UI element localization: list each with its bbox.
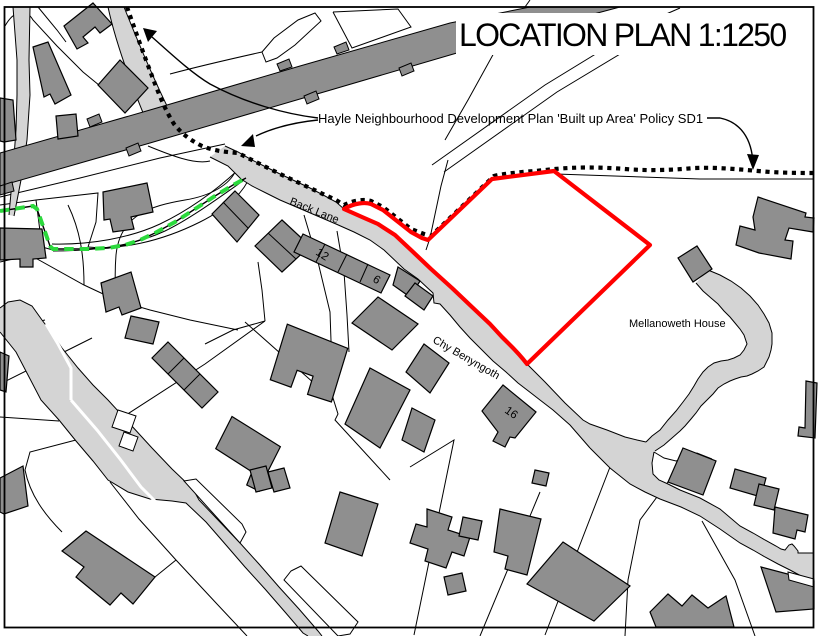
svg-text:Mellanoweth House: Mellanoweth House bbox=[629, 318, 726, 330]
svg-text:Hayle Neighbourhood Developmen: Hayle Neighbourhood Development Plan 'Bu… bbox=[318, 111, 703, 126]
svg-text:LOCATION PLAN 1:1250: LOCATION PLAN 1:1250 bbox=[459, 17, 786, 53]
